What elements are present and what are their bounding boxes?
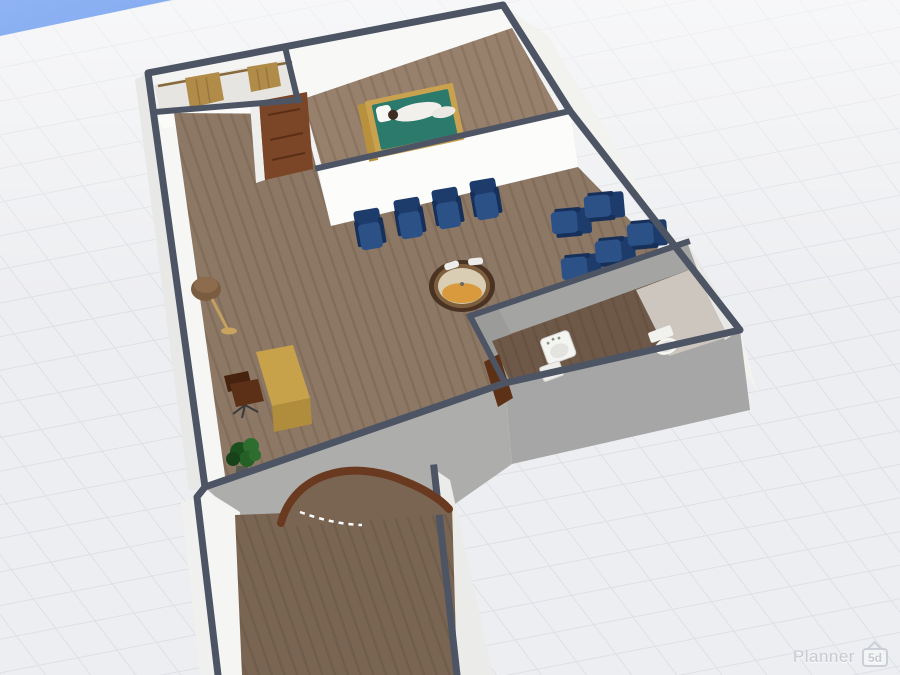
planner-5d-badge: 5d [862,648,888,667]
watermark-text: Planner [793,647,855,667]
table-centerpiece [460,282,464,286]
watermark: Planner 5d [793,647,888,667]
hallway-floor-planks [235,506,457,675]
lamp-shade-top [194,277,218,293]
planner-3d-viewport[interactable]: Planner 5d [0,0,900,675]
lamp-base [221,328,237,335]
floor-plan-scene [0,0,900,675]
